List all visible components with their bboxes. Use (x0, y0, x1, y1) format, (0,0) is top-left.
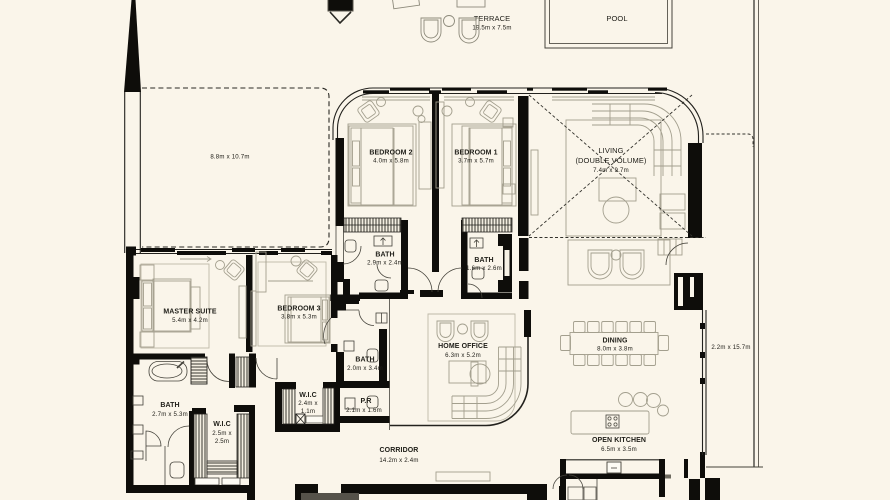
svg-text:OPEN KITCHEN: OPEN KITCHEN (592, 437, 646, 444)
svg-text:8.8m x 10.7m: 8.8m x 10.7m (210, 154, 249, 161)
svg-text:BATH: BATH (375, 252, 394, 259)
svg-text:19.5m x 7.5m: 19.5m x 7.5m (472, 25, 511, 32)
svg-text:6.3m x 5.2m: 6.3m x 5.2m (445, 352, 481, 359)
svg-text:P.R: P.R (360, 398, 371, 405)
svg-text:4.0m x 5.8m: 4.0m x 5.8m (373, 158, 409, 165)
svg-text:CORRIDOR: CORRIDOR (380, 447, 419, 454)
svg-text:BEDROOM 2: BEDROOM 2 (369, 150, 412, 157)
svg-text:(DOUBLE VOLUME): (DOUBLE VOLUME) (575, 156, 646, 165)
svg-text:1.6m x 2.6m: 1.6m x 2.6m (466, 265, 502, 272)
svg-text:2.7m x 5.3m: 2.7m x 5.3m (152, 411, 188, 418)
svg-text:7.4m x 9.7m: 7.4m x 9.7m (593, 167, 629, 174)
svg-text:2.5m: 2.5m (215, 438, 229, 445)
svg-text:2.4m x: 2.4m x (298, 400, 318, 407)
svg-text:5.4m x 4.2m: 5.4m x 4.2m (172, 317, 208, 324)
svg-text:6.5m x 3.5m: 6.5m x 3.5m (601, 446, 637, 453)
svg-text:2.2m x 15.7m: 2.2m x 15.7m (711, 344, 750, 351)
svg-text:8.0m x 3.8m: 8.0m x 3.8m (597, 346, 633, 353)
svg-text:BATH: BATH (474, 257, 493, 264)
svg-text:DINING: DINING (602, 338, 628, 345)
svg-text:BEDROOM 1: BEDROOM 1 (454, 150, 497, 157)
svg-text:2.9m x 2.4m: 2.9m x 2.4m (367, 260, 403, 267)
svg-text:14.2m x 2.4m: 14.2m x 2.4m (379, 457, 418, 464)
svg-text:W.I.C: W.I.C (213, 421, 231, 428)
svg-text:MASTER SUITE: MASTER SUITE (163, 309, 217, 316)
svg-text:BATH: BATH (355, 357, 374, 364)
svg-text:1.1m: 1.1m (301, 408, 315, 415)
svg-text:BEDROOM 3: BEDROOM 3 (277, 306, 320, 313)
svg-text:POOL: POOL (606, 14, 627, 23)
svg-text:3.8m x 5.3m: 3.8m x 5.3m (281, 314, 317, 321)
svg-text:BATH: BATH (160, 402, 179, 409)
svg-text:W.I.C: W.I.C (299, 392, 317, 399)
svg-text:2.1m x 1.6m: 2.1m x 1.6m (346, 407, 382, 414)
svg-text:LIVING: LIVING (598, 146, 623, 155)
svg-text:HOME OFFICE: HOME OFFICE (438, 343, 488, 350)
svg-text:3.7m x 5.7m: 3.7m x 5.7m (458, 158, 494, 165)
svg-text:2.5m x: 2.5m x (212, 430, 232, 437)
svg-text:2.0m x 3.4m: 2.0m x 3.4m (347, 365, 383, 372)
